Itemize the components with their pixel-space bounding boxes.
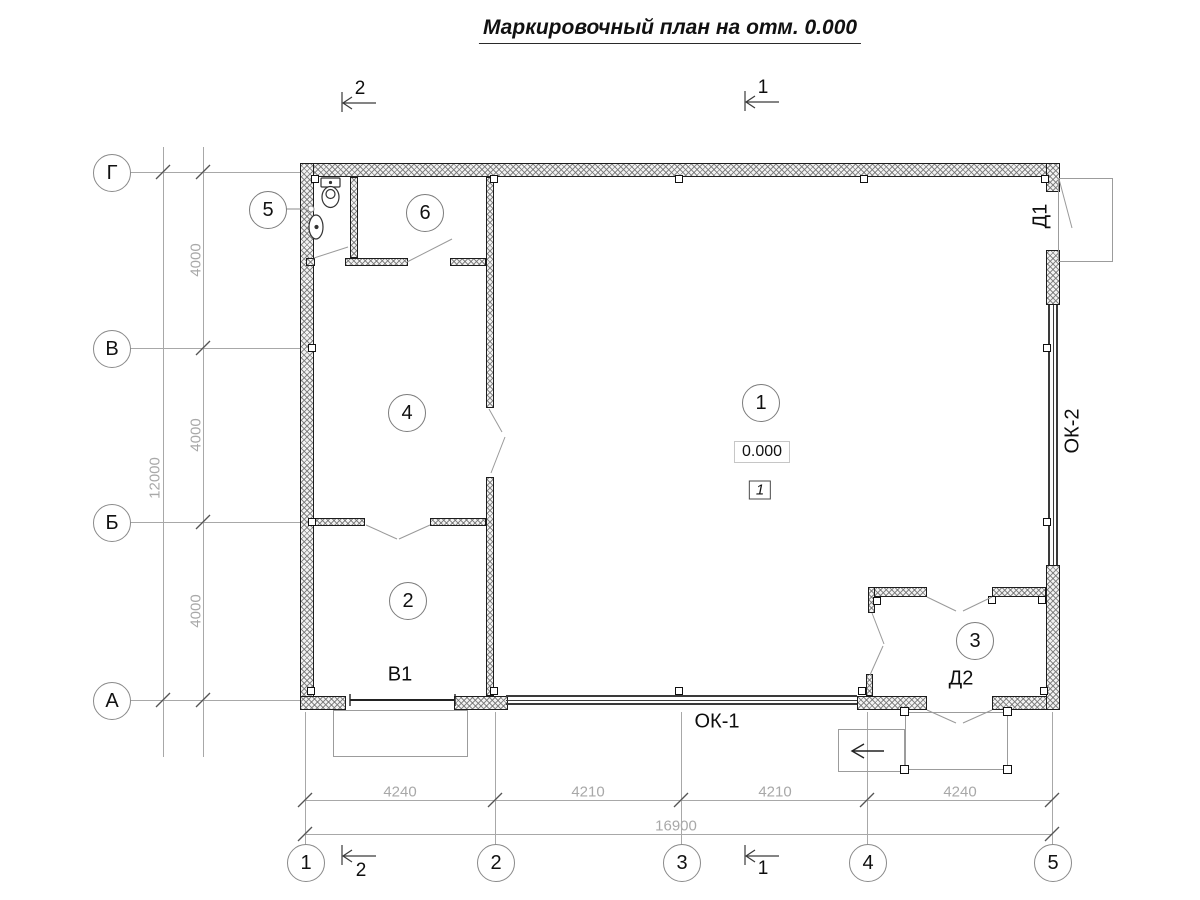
entrance-arrow-icon [852,744,884,758]
dim-left-total: 12000 [147,457,164,499]
room-bubble-2: 2 [389,582,427,620]
elevation-mark: 0.000 [734,441,790,463]
toilet-icon [321,178,340,208]
window-ok1-label: ОК-1 [695,711,740,734]
section-label-2-top: 2 [355,78,366,100]
detail-mark: 1 [749,481,771,500]
axis-bubble-col-2: 2 [477,844,515,882]
floor-plan-drawing: Маркировочный план на отм. 0.000 [0,0,1200,900]
dim-left-segment-1: 4000 [188,243,205,276]
section-label-2-bottom: 2 [356,860,367,882]
axis-label: Б [105,512,118,535]
axis-label: 5 [1047,852,1058,875]
dim-left-segment-3: 4000 [188,594,205,627]
axis-label: 4 [862,852,873,875]
room-bubble-3: 3 [956,622,994,660]
drawing-linework [0,0,1200,900]
gate-b1-label: В1 [388,664,412,687]
axis-label: В [105,338,118,361]
room-number: 4 [401,402,412,425]
section-label-1-bottom: 1 [758,858,769,880]
room-number: 5 [262,199,273,222]
gate-b1-symbol [350,694,455,706]
dim-bottom-segment-3: 4210 [758,784,791,801]
dim-bottom-segment-1: 4240 [383,784,416,801]
axis-bubble-row-b: Б [93,504,131,542]
axis-label: 1 [300,852,311,875]
room-number: 3 [969,630,980,653]
dim-bottom-segment-4: 4240 [943,784,976,801]
room-bubble-1: 1 [742,384,780,422]
room-number: 6 [419,202,430,225]
room-bubble-5: 5 [249,191,287,229]
axis-bubble-row-a: А [93,682,131,720]
dim-left-segment-2: 4000 [188,418,205,451]
room-bubble-4: 4 [388,394,426,432]
dim-bottom-total: 16900 [655,818,697,835]
room-number: 2 [402,590,413,613]
room-number: 1 [755,392,766,415]
axis-bubble-col-5: 5 [1034,844,1072,882]
axis-bubble-row-v: В [93,330,131,368]
door-d2-label: Д2 [949,668,974,691]
room-bubble-6: 6 [406,194,444,232]
sink-icon [309,215,323,239]
axis-bubble-row-g: Г [93,154,131,192]
axis-label: 3 [676,852,687,875]
axis-label: Г [107,162,118,185]
dimension-ticks [156,165,1059,841]
axis-label: А [105,690,118,713]
door-d1-label: Д1 [1030,204,1053,229]
axis-label: 2 [490,852,501,875]
room5-leader [286,206,314,212]
axis-bubble-col-1: 1 [287,844,325,882]
axis-bubble-col-3: 3 [663,844,701,882]
dim-bottom-segment-2: 4210 [571,784,604,801]
window-ok2-label: ОК-2 [1062,409,1085,454]
axis-bubble-col-4: 4 [849,844,887,882]
section-label-1-top: 1 [758,77,769,99]
